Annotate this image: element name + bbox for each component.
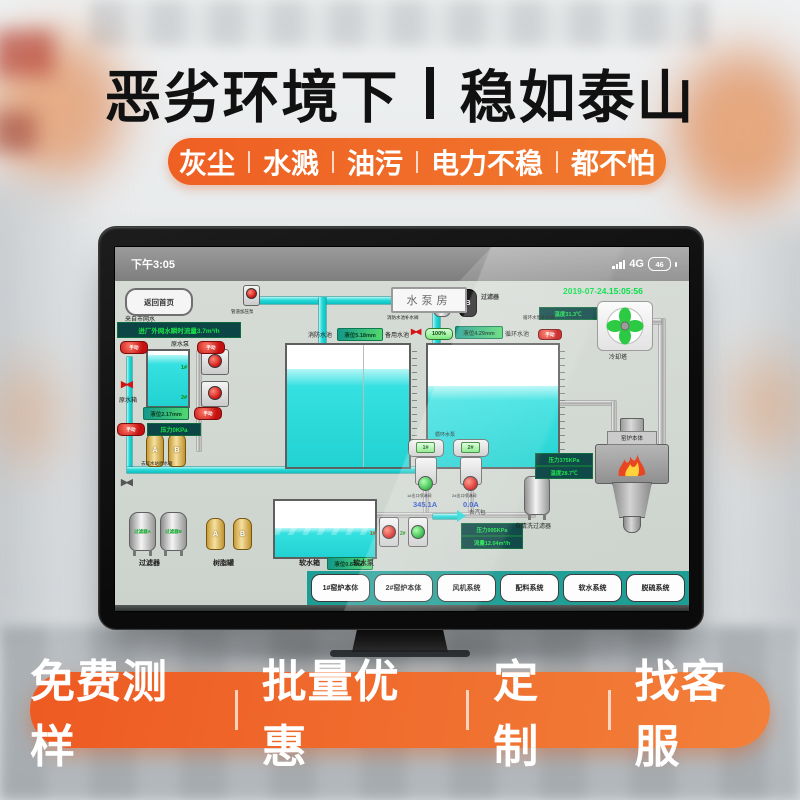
circ-pool-tank: [426, 343, 560, 469]
circ-pump1-tag: 1#: [416, 442, 435, 453]
feature-splash: 水溅: [263, 142, 319, 182]
soft-pump1-tag: 1#: [370, 531, 376, 537]
nav-boiler1-button[interactable]: 1#窑炉本体: [311, 574, 370, 602]
feature-oil: 油污: [347, 142, 403, 182]
fan-icon: [605, 306, 645, 346]
cooling-tower-icon[interactable]: [597, 301, 653, 351]
soft-pump1-status: [382, 525, 396, 539]
tank-water: [287, 369, 409, 467]
raw-pump2-status: [208, 386, 222, 400]
feature-fearless: 都不怕: [571, 142, 655, 182]
circ-pool-label: 循环水池: [505, 329, 529, 338]
circ-mode-badge: 手动: [538, 329, 562, 340]
raw-pump2-tag: 2#: [181, 395, 187, 401]
sand-filter-a[interactable]: 过滤器A: [129, 512, 156, 551]
soft-flow-led: 流量12.04m³/h: [461, 536, 523, 549]
scada-datetime: 2019-07-24.15:05:56: [563, 286, 643, 296]
cooling-tower-label: 冷却塔: [609, 352, 627, 361]
flame-icon: [612, 450, 652, 478]
fill-valve-icon[interactable]: ▶◀: [411, 327, 419, 336]
to-drum-label: 去汽包: [469, 508, 486, 516]
raw-pressure-led: 压力0KPa: [147, 423, 201, 436]
filters-label: 过滤器: [139, 558, 160, 568]
soft-pump2-status: [411, 525, 425, 539]
status-time: 下午3:05: [131, 256, 175, 272]
network-type-label: 4G: [629, 258, 644, 270]
boiler-lower: [612, 482, 652, 518]
raw-level-badge: 液位2.17mm: [143, 407, 189, 420]
backdrop-robot-mid-left: [0, 340, 76, 490]
inflow-led: 进厂外网水瞬时流量3.7m³/h: [117, 322, 241, 338]
screen: 下午3:05 4G 46: [114, 246, 690, 612]
raw-pump-label: 原水泵: [171, 339, 189, 348]
duct-pump-status-dot: [246, 288, 257, 299]
tank-glare: [275, 501, 375, 535]
backdrop-machine-right: [700, 220, 800, 640]
boiler-label: 窑炉本体: [607, 431, 657, 445]
battery-nub: [675, 262, 677, 267]
boiler-temp-led: 温度28.7℃: [535, 466, 593, 479]
raw-mode-badge-2: 手动: [197, 341, 225, 354]
backdrop-robot-mid-right: [712, 330, 800, 480]
duct-pump-label: 管道加压泵: [231, 309, 254, 315]
hero-title-left: 恶劣环境下: [105, 52, 400, 134]
fill-valve-label: 消防水池补水阀: [387, 315, 419, 321]
fill-valve-status: 100%: [425, 328, 453, 340]
feature-power: 电力不稳: [431, 142, 543, 182]
screen-bottom-shade: [115, 605, 689, 611]
home-button[interactable]: 返回首页: [125, 288, 193, 316]
hero-title: 恶劣环境下 稳如泰山: [0, 52, 800, 134]
backdrop-machine-left: [0, 180, 110, 640]
nav-fan-button[interactable]: 风机系统: [437, 574, 496, 602]
resin-label: 树脂罐: [213, 558, 234, 568]
nav-batching-button[interactable]: 配料系统: [500, 574, 559, 602]
circ-valve1-value: 345.1A: [413, 500, 437, 509]
room-title: 水泵房: [391, 287, 467, 313]
scada-screen: 返回首页 来自市网水 进厂外网水瞬时流量3.7m³/h 管道加压泵 水泵房 A …: [115, 281, 689, 611]
to-drum-arrow-icon: [457, 510, 466, 522]
android-status-bar: 下午3:05 4G 46: [115, 247, 689, 281]
footer-banner: 免费测样 批量优惠 定制 找客服: [30, 672, 770, 748]
circ-pump2-status: [463, 476, 478, 491]
raw-inlet-valve-icon[interactable]: ▶◀: [121, 379, 131, 390]
nav-desulfur-button[interactable]: 脱硫系统: [626, 574, 685, 602]
nav-softwater-button[interactable]: 软水系统: [563, 574, 622, 602]
circ-pump-label: 循环水泵: [435, 431, 455, 438]
self-clean-filter-icon[interactable]: [524, 476, 550, 515]
circ-valve1-label: 1#出口喷淋阀: [407, 493, 431, 499]
boiler-nozzle: [623, 516, 641, 533]
fire-spare-pool-tank: [285, 343, 411, 469]
fire-pool-label: 消防水池: [308, 330, 332, 339]
circ-pool-level-badge: 液位4.29mm: [455, 326, 503, 339]
circ-valve-label: 循环水泵补水阀: [523, 315, 555, 321]
panel-pc: 下午3:05 4G 46: [98, 226, 704, 630]
backdrop-pipes: [90, 0, 710, 46]
footer-customize: 定制: [493, 645, 583, 775]
spare-pool-label: 备用水池: [385, 330, 409, 339]
raw-pump1-status: [208, 354, 222, 368]
raw-mode-badge-4: 手动: [194, 407, 222, 420]
raw-tank-label: 原水箱: [119, 395, 137, 404]
footer-contact-service: 找客服: [635, 645, 771, 775]
tank-partition: [363, 345, 364, 467]
footer-free-sample: 免费测样: [30, 645, 211, 775]
top-filter-label: 过滤器: [481, 292, 499, 301]
self-clean-label: 自清洗过滤器: [515, 521, 551, 530]
fire-pool-level-badge: 液位5.18mm: [337, 328, 383, 341]
pipe-left-down: [127, 357, 132, 470]
feature-pill: 灰尘 水溅 油污 电力不稳 都不怕: [168, 138, 666, 185]
sand-filter-b[interactable]: 过滤器B: [160, 512, 187, 551]
raw-mode-badge-1: 手动: [120, 341, 148, 354]
feature-dust: 灰尘: [179, 142, 235, 182]
circ-valve2-value: 0.0A: [463, 500, 479, 509]
soft-pump-label: 软水泵: [353, 558, 374, 568]
station-valve-icon[interactable]: ▶◀: [121, 477, 131, 488]
circ-valve2-label: 2#出口喷淋阀: [452, 493, 476, 499]
footer-bulk-discount: 批量优惠: [262, 645, 443, 775]
raw-pump1-tag: 1#: [181, 365, 187, 371]
sand-filter-b-text: 过滤器B: [165, 529, 182, 535]
title-divider: [426, 67, 434, 119]
level-ruler-2: [560, 351, 565, 459]
boiler-pressure-led: 压力375KPa: [535, 453, 593, 466]
soft-pressure-led: 压力995KPa: [461, 523, 523, 536]
nav-boiler2-button[interactable]: 2#窑炉本体: [374, 574, 433, 602]
boiler-body[interactable]: [595, 444, 669, 484]
sand-filter-a-text: 过滤器A: [134, 529, 151, 535]
circ-pump1-status: [418, 476, 433, 491]
signal-icon: [612, 260, 625, 269]
resin-vessel-b[interactable]: B: [233, 518, 252, 550]
battery-icon: 46: [648, 257, 671, 271]
resin-vessel-a[interactable]: A: [206, 518, 225, 550]
system-nav-bar: 1#窑炉本体 2#窑炉本体 风机系统 配料系统 软水系统 脱硫系统: [307, 571, 689, 605]
soft-pump2-tag: 2#: [400, 531, 406, 537]
raw-mode-badge-3: 手动: [117, 423, 145, 436]
hero-title-right: 稳如泰山: [460, 52, 696, 134]
to-drum-pipe: [433, 514, 457, 519]
soft-tank-label: 软水箱: [299, 558, 320, 568]
to-station-label: 去软水站原水箱: [141, 461, 173, 467]
soft-water-tank: [273, 499, 377, 559]
circ-pump2-tag: 2#: [461, 442, 480, 453]
